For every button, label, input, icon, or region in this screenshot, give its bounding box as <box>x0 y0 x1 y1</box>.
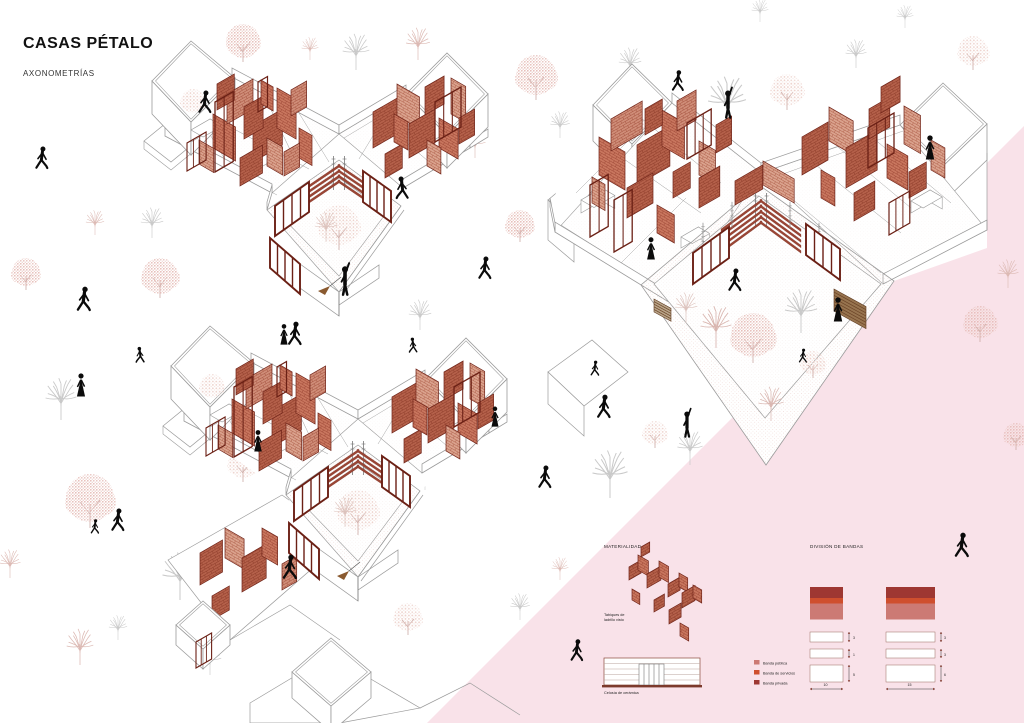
svg-text:6: 6 <box>944 673 946 677</box>
svg-text:Tabiques de: Tabiques de <box>604 613 624 617</box>
svg-text:1: 1 <box>853 653 855 657</box>
svg-text:Banda de servicios: Banda de servicios <box>763 671 795 675</box>
svg-text:MATERIALIDAD: MATERIALIDAD <box>604 544 642 549</box>
svg-text:10: 10 <box>824 683 828 687</box>
svg-text:3: 3 <box>944 636 946 640</box>
svg-text:3: 3 <box>853 636 855 640</box>
svg-text:AXONOMETRÍAS: AXONOMETRÍAS <box>23 69 95 78</box>
svg-text:Banda pública: Banda pública <box>763 661 788 665</box>
svg-text:ladrillo visto: ladrillo visto <box>604 618 624 622</box>
svg-text:DIVISIÓN DE BANDAS: DIVISIÓN DE BANDAS <box>810 543 863 549</box>
svg-text:CASAS PÉTALO: CASAS PÉTALO <box>23 33 153 52</box>
svg-text:5: 5 <box>853 673 855 677</box>
svg-text:Celosía de cerámica: Celosía de cerámica <box>604 691 639 695</box>
svg-text:15: 15 <box>908 683 912 687</box>
svg-text:3: 3 <box>944 653 946 657</box>
svg-text:Banda privada: Banda privada <box>763 681 788 685</box>
